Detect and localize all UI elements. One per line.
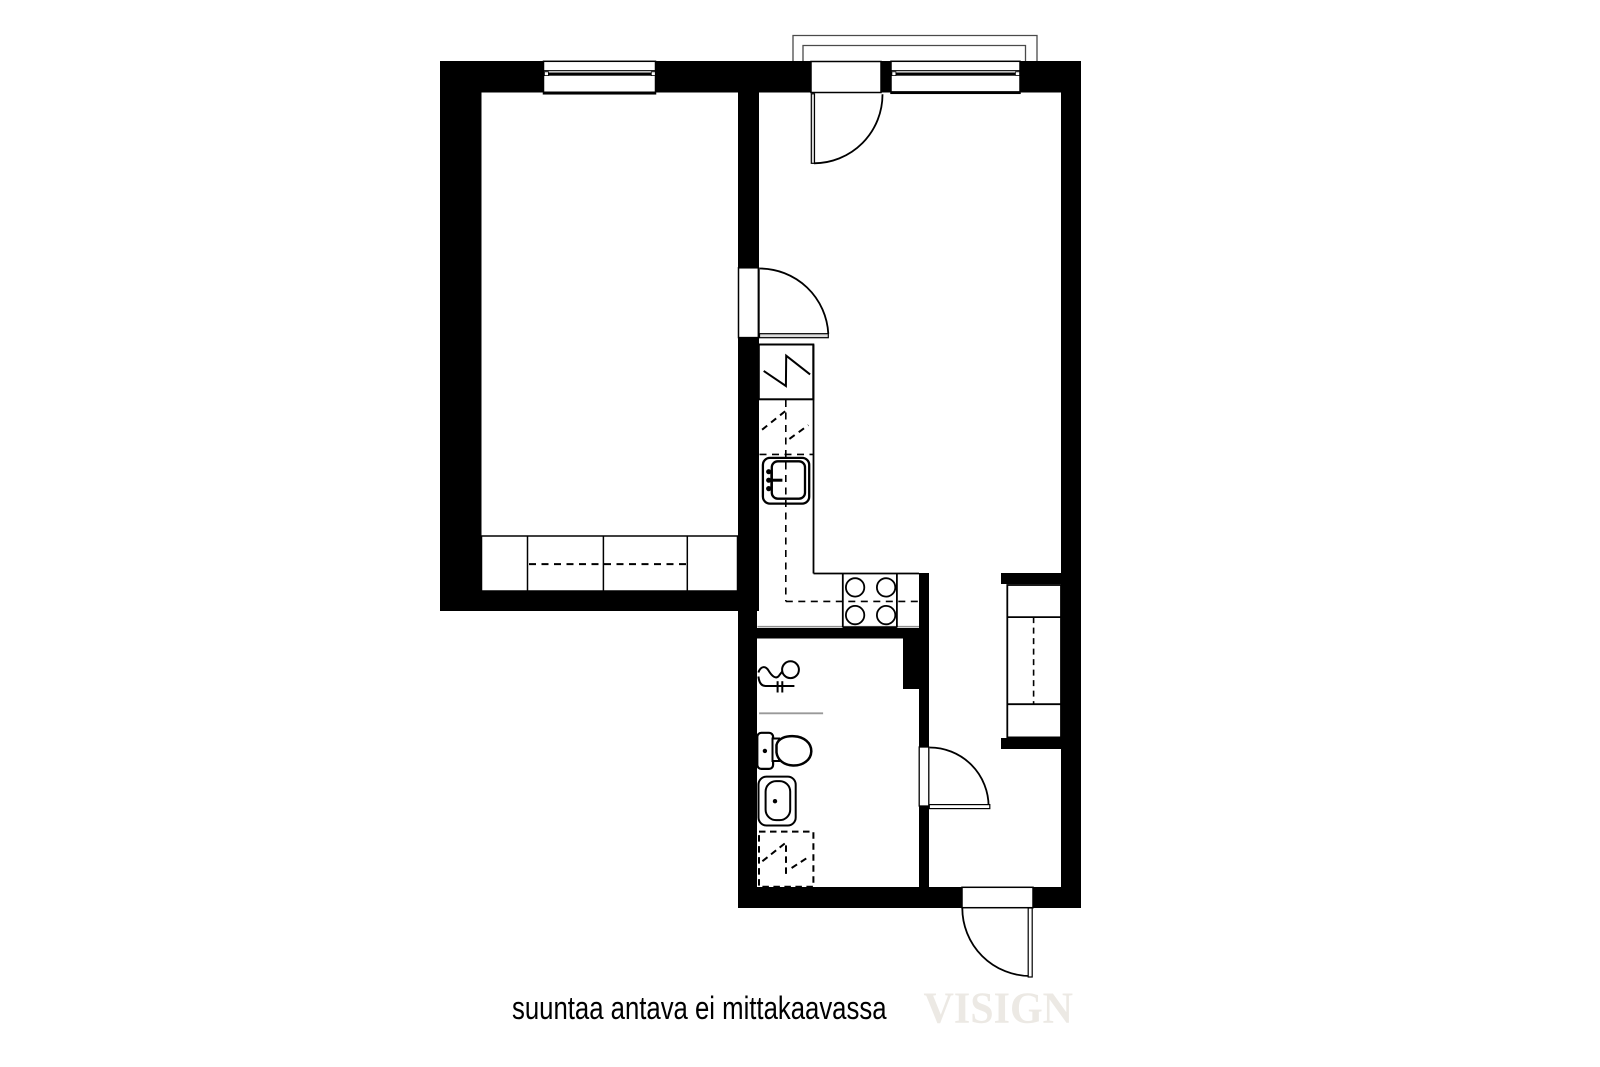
- svg-text:suuntaa antava ei mittakaavass: suuntaa antava ei mittakaavassa: [512, 990, 887, 1026]
- svg-text:VISIGN: VISIGN: [924, 984, 1074, 1033]
